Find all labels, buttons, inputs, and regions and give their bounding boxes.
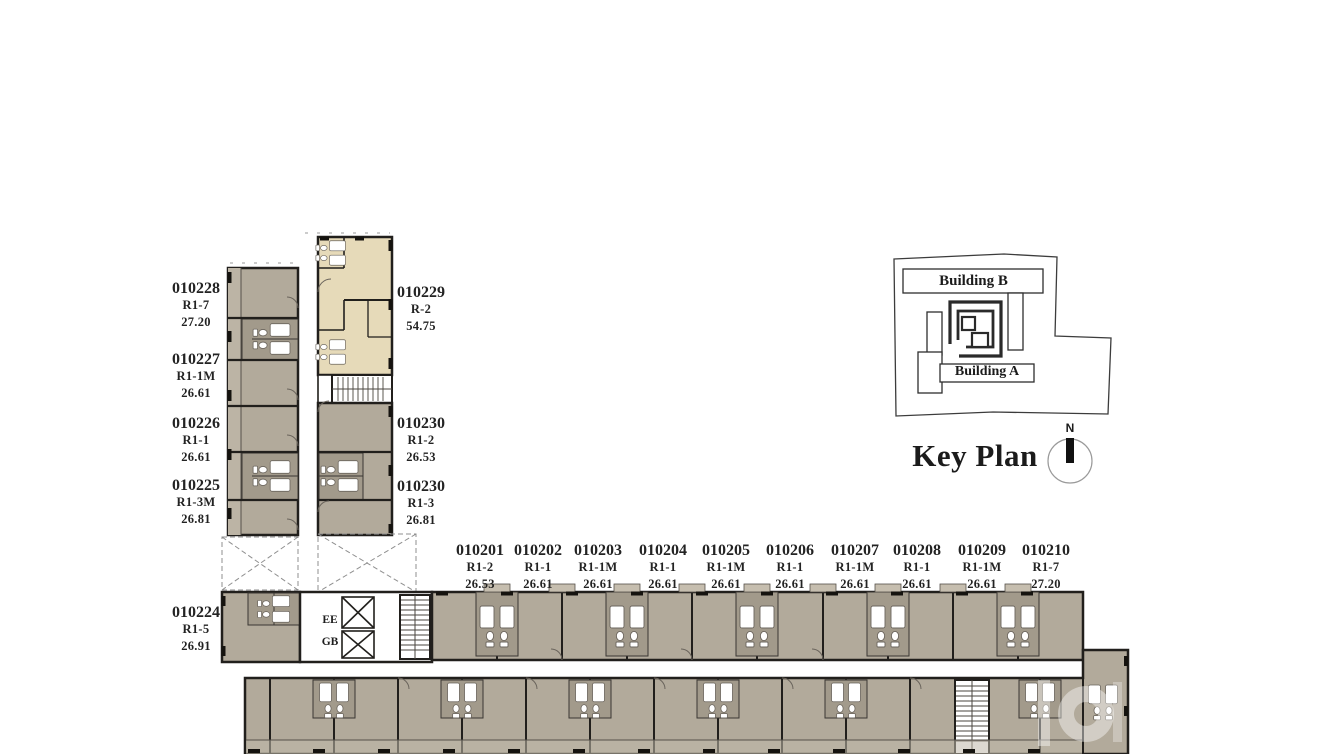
unit-type: R1-1M: [946, 559, 1018, 576]
unit-type: R1-5: [160, 621, 232, 638]
bottom-wing-upper-row: [432, 584, 1083, 660]
unit-label-010228: 010228 R1-7 27.20: [160, 280, 232, 331]
unit-id: 010225: [160, 477, 232, 494]
unit-label-010229: 010229 R-2 54.75: [385, 284, 457, 335]
floor-plan-page: 010228 R1-7 27.20 010227 R1-1M 26.61 010…: [0, 0, 1342, 754]
unit-id: 010228: [160, 280, 232, 297]
unit-id: 010230: [385, 478, 457, 495]
elevator-shafts: [342, 597, 374, 658]
stair-vertical-wing: [318, 375, 392, 403]
unit-type: R1-1M: [160, 368, 232, 385]
unit-area: 26.53: [385, 449, 457, 466]
unit-type: R1-2: [385, 432, 457, 449]
unit-area: 26.61: [946, 576, 1018, 593]
unit-id: 010208: [881, 542, 953, 559]
bottom-wing-lower-row: [245, 650, 1128, 754]
unit-area: 26.61: [562, 576, 634, 593]
unit-label-010224: 010224 R1-5 26.91: [160, 604, 232, 655]
unit-area: 26.81: [160, 511, 232, 528]
unit-area: 54.75: [385, 318, 457, 335]
unit-label-010203: 010203 R1-1M 26.61: [562, 542, 634, 593]
unit-type: R1-1M: [690, 559, 762, 576]
unit-type: R1-3M: [160, 494, 232, 511]
unit-label-010227: 010227 R1-1M 26.61: [160, 351, 232, 402]
unit-label-010230-r1-2: 010230 R1-2 26.53: [385, 415, 457, 466]
void-openings: [222, 534, 416, 592]
unit-id: 010229: [385, 284, 457, 301]
core-label-ee: EE: [317, 614, 343, 626]
stair-core: [400, 595, 430, 659]
unit-label-010210: 010210 R1-7 27.20: [1010, 542, 1082, 593]
unit-label-010204: 010204 R1-1 26.61: [627, 542, 699, 593]
unit-label-010206: 010206 R1-1 26.61: [754, 542, 826, 593]
unit-area: 26.61: [754, 576, 826, 593]
unit-type: R1-1: [754, 559, 826, 576]
unit-label-010225: 010225 R1-3M 26.81: [160, 477, 232, 528]
key-plan-title: Key Plan: [875, 438, 1075, 474]
unit-type: R1-1: [627, 559, 699, 576]
unit-area: 26.61: [160, 385, 232, 402]
unit-area: 27.20: [1010, 576, 1082, 593]
unit-id: 010210: [1010, 542, 1082, 559]
unit-area: 26.61: [160, 449, 232, 466]
unit-type: R1-1: [160, 432, 232, 449]
unit-id: 010206: [754, 542, 826, 559]
unit-010229-highlighted: [318, 237, 392, 375]
unit-type: R1-3: [385, 495, 457, 512]
unit-label-010205: 010205 R1-1M 26.61: [690, 542, 762, 593]
building-b-label: Building B: [903, 273, 1044, 290]
core-block: [222, 592, 432, 662]
unit-label-010230-r1-3: 010230 R1-3 26.81: [385, 478, 457, 529]
unit-type: R1-7: [1010, 559, 1082, 576]
unit-area: 26.91: [160, 638, 232, 655]
building-a-label: Building A: [917, 364, 1057, 380]
unit-area: 27.20: [160, 314, 232, 331]
unit-area: 26.61: [690, 576, 762, 593]
unit-type: R-2: [385, 301, 457, 318]
core-label-gb: GB: [317, 636, 343, 648]
unit-id: 010224: [160, 604, 232, 621]
unit-area: 26.61: [627, 576, 699, 593]
unit-type: R1-7: [160, 297, 232, 314]
unit-id: 010204: [627, 542, 699, 559]
unit-id: 010205: [690, 542, 762, 559]
unit-label-010226: 010226 R1-1 26.61: [160, 415, 232, 466]
unit-type: R1-1: [881, 559, 953, 576]
unit-id: 010230: [385, 415, 457, 432]
unit-type: R1-1M: [562, 559, 634, 576]
vertical-wing-left-column: [228, 268, 298, 535]
unit-id: 010203: [562, 542, 634, 559]
unit-id: 010227: [160, 351, 232, 368]
unit-area: 26.81: [385, 512, 457, 529]
unit-label-010209: 010209 R1-1M 26.61: [946, 542, 1018, 593]
unit-label-010208: 010208 R1-1 26.61: [881, 542, 953, 593]
north-label: N: [1058, 421, 1082, 435]
unit-area: 26.61: [881, 576, 953, 593]
unit-id: 010226: [160, 415, 232, 432]
unit-id: 010209: [946, 542, 1018, 559]
